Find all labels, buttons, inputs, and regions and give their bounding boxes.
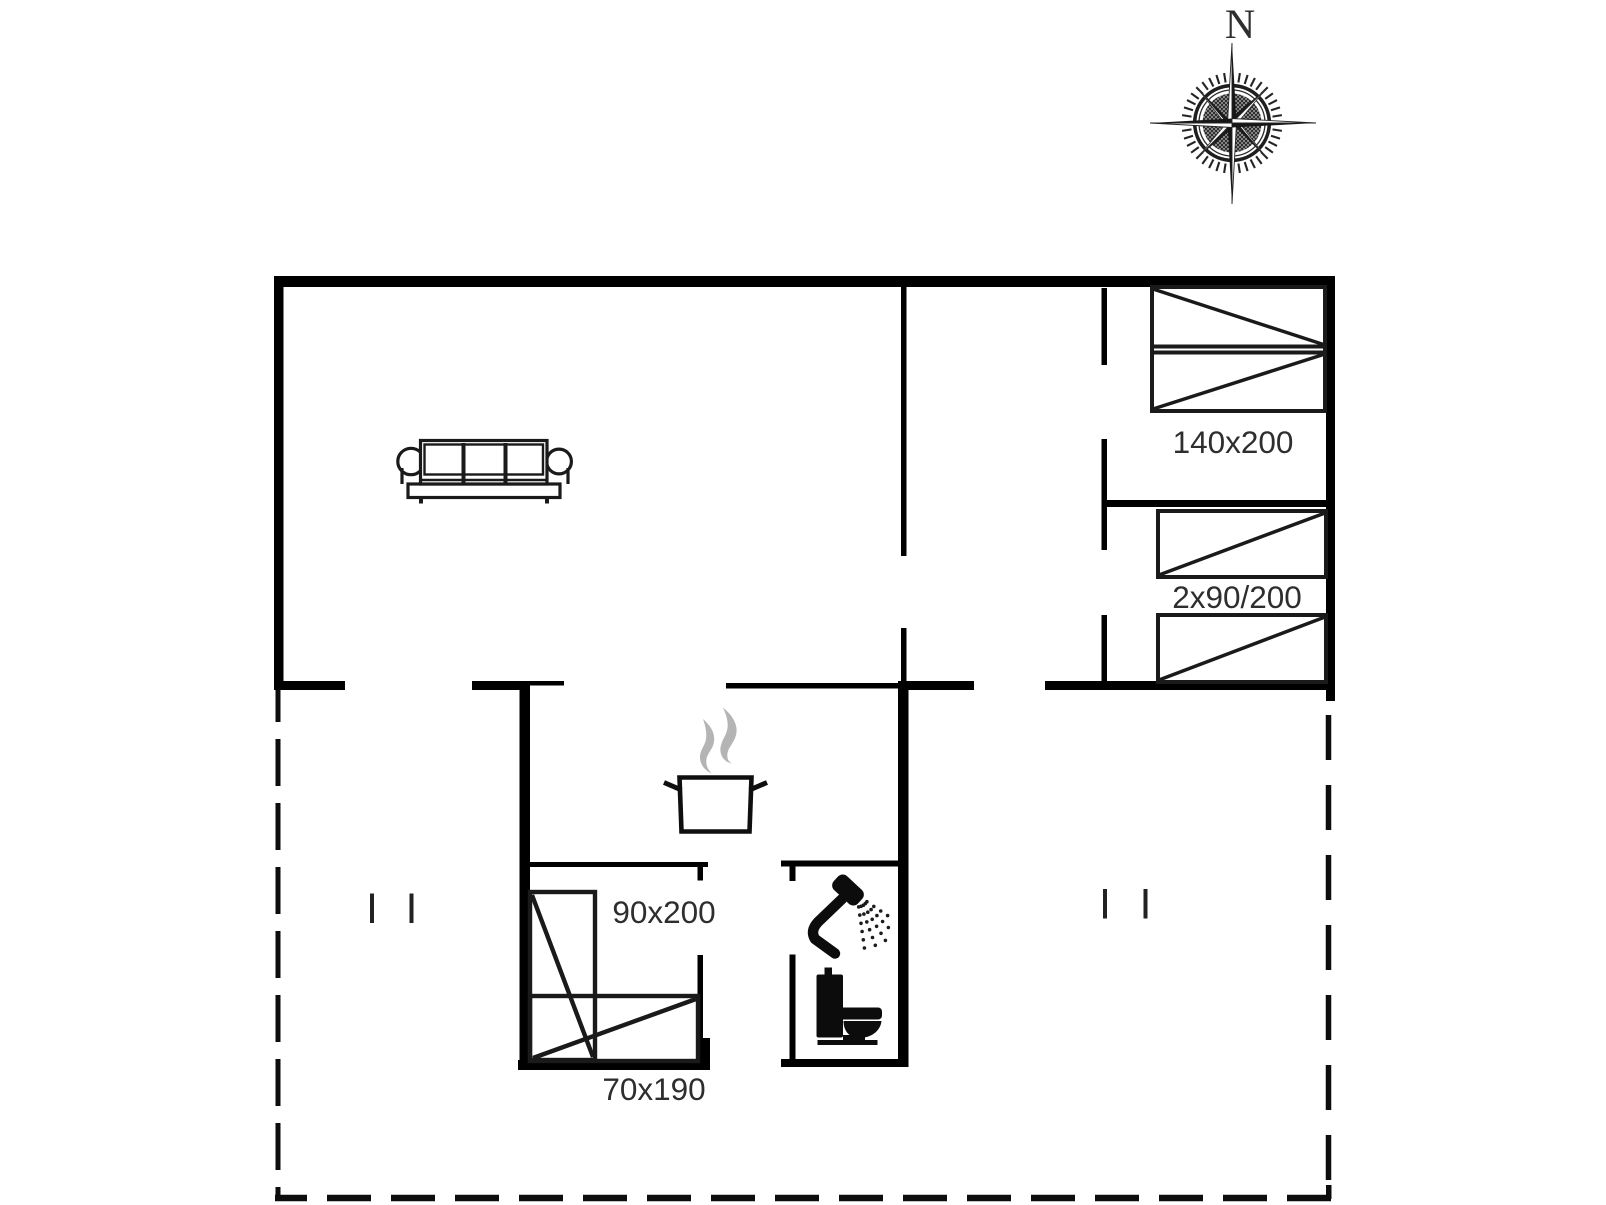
svg-text:N: N: [1225, 2, 1255, 48]
svg-text:140x200: 140x200: [1173, 424, 1294, 460]
svg-text:70x190: 70x190: [602, 1071, 705, 1107]
svg-text:2x90/200: 2x90/200: [1172, 579, 1302, 615]
svg-text:90x200: 90x200: [612, 894, 715, 930]
